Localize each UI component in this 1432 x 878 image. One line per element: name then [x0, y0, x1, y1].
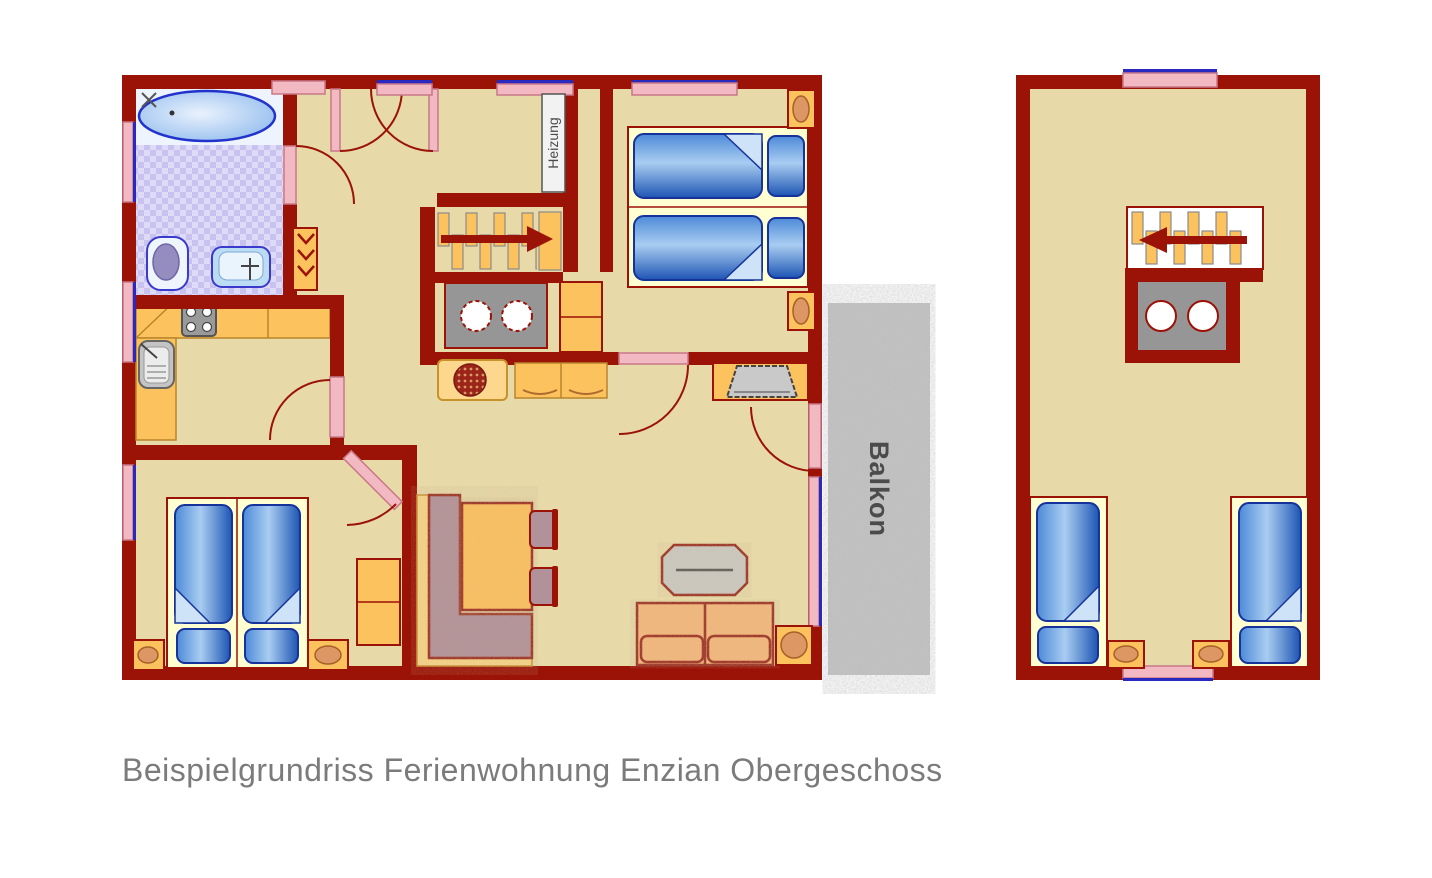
heizung-label-text: Heizung: [545, 117, 561, 168]
balcony-label-text: Balkon: [864, 441, 894, 537]
bathroom-door-leaf: [284, 146, 296, 204]
nightstand: [1193, 641, 1229, 668]
stairs-left-plan: [435, 210, 563, 272]
right-floor-plan: [1016, 69, 1320, 681]
plant: [438, 360, 507, 400]
left-floor-plan: Heizung: [122, 75, 822, 680]
nightstand: [308, 640, 348, 670]
balcony: Balkon: [828, 303, 930, 675]
window: [1123, 73, 1217, 87]
side-table: [776, 626, 812, 665]
pillow: [1240, 627, 1300, 663]
hall-door-leaf: [331, 89, 340, 151]
floor-plan-canvas: Heizung: [0, 0, 1432, 878]
window: [123, 465, 133, 540]
pillow: [177, 629, 230, 663]
wall-bench: [515, 363, 607, 398]
window: [123, 122, 133, 202]
dining-chair: [530, 509, 558, 550]
bathtub-drain: [170, 111, 175, 116]
window-glass-line: [819, 477, 822, 626]
chimney: [445, 283, 547, 348]
heizung-label: Heizung: [542, 94, 565, 192]
coffee-table: [662, 545, 747, 595]
window: [377, 84, 432, 95]
nightstand: [133, 640, 164, 670]
tv: [713, 363, 808, 400]
chimney-flue: [502, 301, 532, 331]
balcony-window: [809, 477, 819, 626]
window-glass-line: [133, 282, 136, 362]
window: [632, 83, 737, 95]
living-room-door-leaf: [619, 353, 688, 364]
nightstand: [788, 90, 815, 128]
wardrobe: [357, 559, 400, 645]
window-glass-line: [1123, 678, 1213, 681]
dining-chair: [530, 566, 558, 607]
window-glass-line: [133, 122, 136, 202]
pillow: [245, 629, 298, 663]
bathtub: [139, 91, 275, 141]
chimney-flue: [461, 301, 491, 331]
bathroom: [136, 89, 283, 295]
kitchen-sink: [139, 341, 174, 388]
nightstand: [788, 292, 815, 330]
pillow: [1038, 627, 1098, 663]
kitchen-door-leaf: [330, 377, 344, 437]
caption: Beispielgrundriss Ferienwohnung Enzian O…: [122, 752, 943, 789]
nightstand: [1108, 641, 1144, 668]
toilet: [147, 237, 188, 290]
window-glass-line: [133, 465, 136, 540]
window: [272, 81, 325, 94]
hall-cabinet: [560, 282, 602, 352]
dining-table: [462, 503, 532, 610]
chimney-flue: [1188, 301, 1218, 331]
window: [123, 282, 133, 362]
chimney-flue: [1146, 301, 1176, 331]
stairs-right-plan: [1127, 207, 1263, 269]
storage-room-door-leaf: [429, 89, 438, 151]
radiator: [293, 228, 317, 290]
pillow: [768, 218, 804, 278]
bathroom-sink: [212, 247, 270, 287]
sofa: [637, 603, 773, 665]
floor-plan-drawing: Heizung: [0, 0, 1432, 740]
pillow: [768, 136, 804, 196]
balcony-door-leaf: [809, 404, 821, 468]
